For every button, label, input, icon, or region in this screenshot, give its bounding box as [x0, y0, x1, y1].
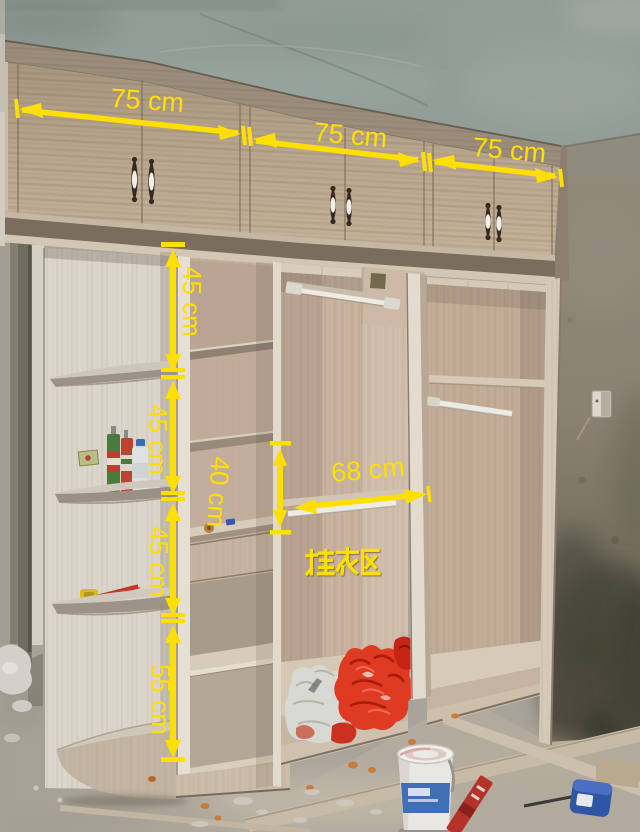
svg-text:45 cm: 45 cm: [177, 266, 207, 337]
svg-text:45 cm: 45 cm: [144, 526, 174, 597]
svg-text:75 cm: 75 cm: [471, 132, 547, 168]
svg-text:75 cm: 75 cm: [110, 83, 185, 118]
svg-text:68 cm: 68 cm: [330, 452, 406, 488]
svg-text:75 cm: 75 cm: [312, 117, 388, 153]
svg-text:55 cm: 55 cm: [146, 664, 176, 735]
svg-text:45 cm: 45 cm: [143, 404, 173, 475]
svg-text:40 cm: 40 cm: [201, 456, 236, 529]
